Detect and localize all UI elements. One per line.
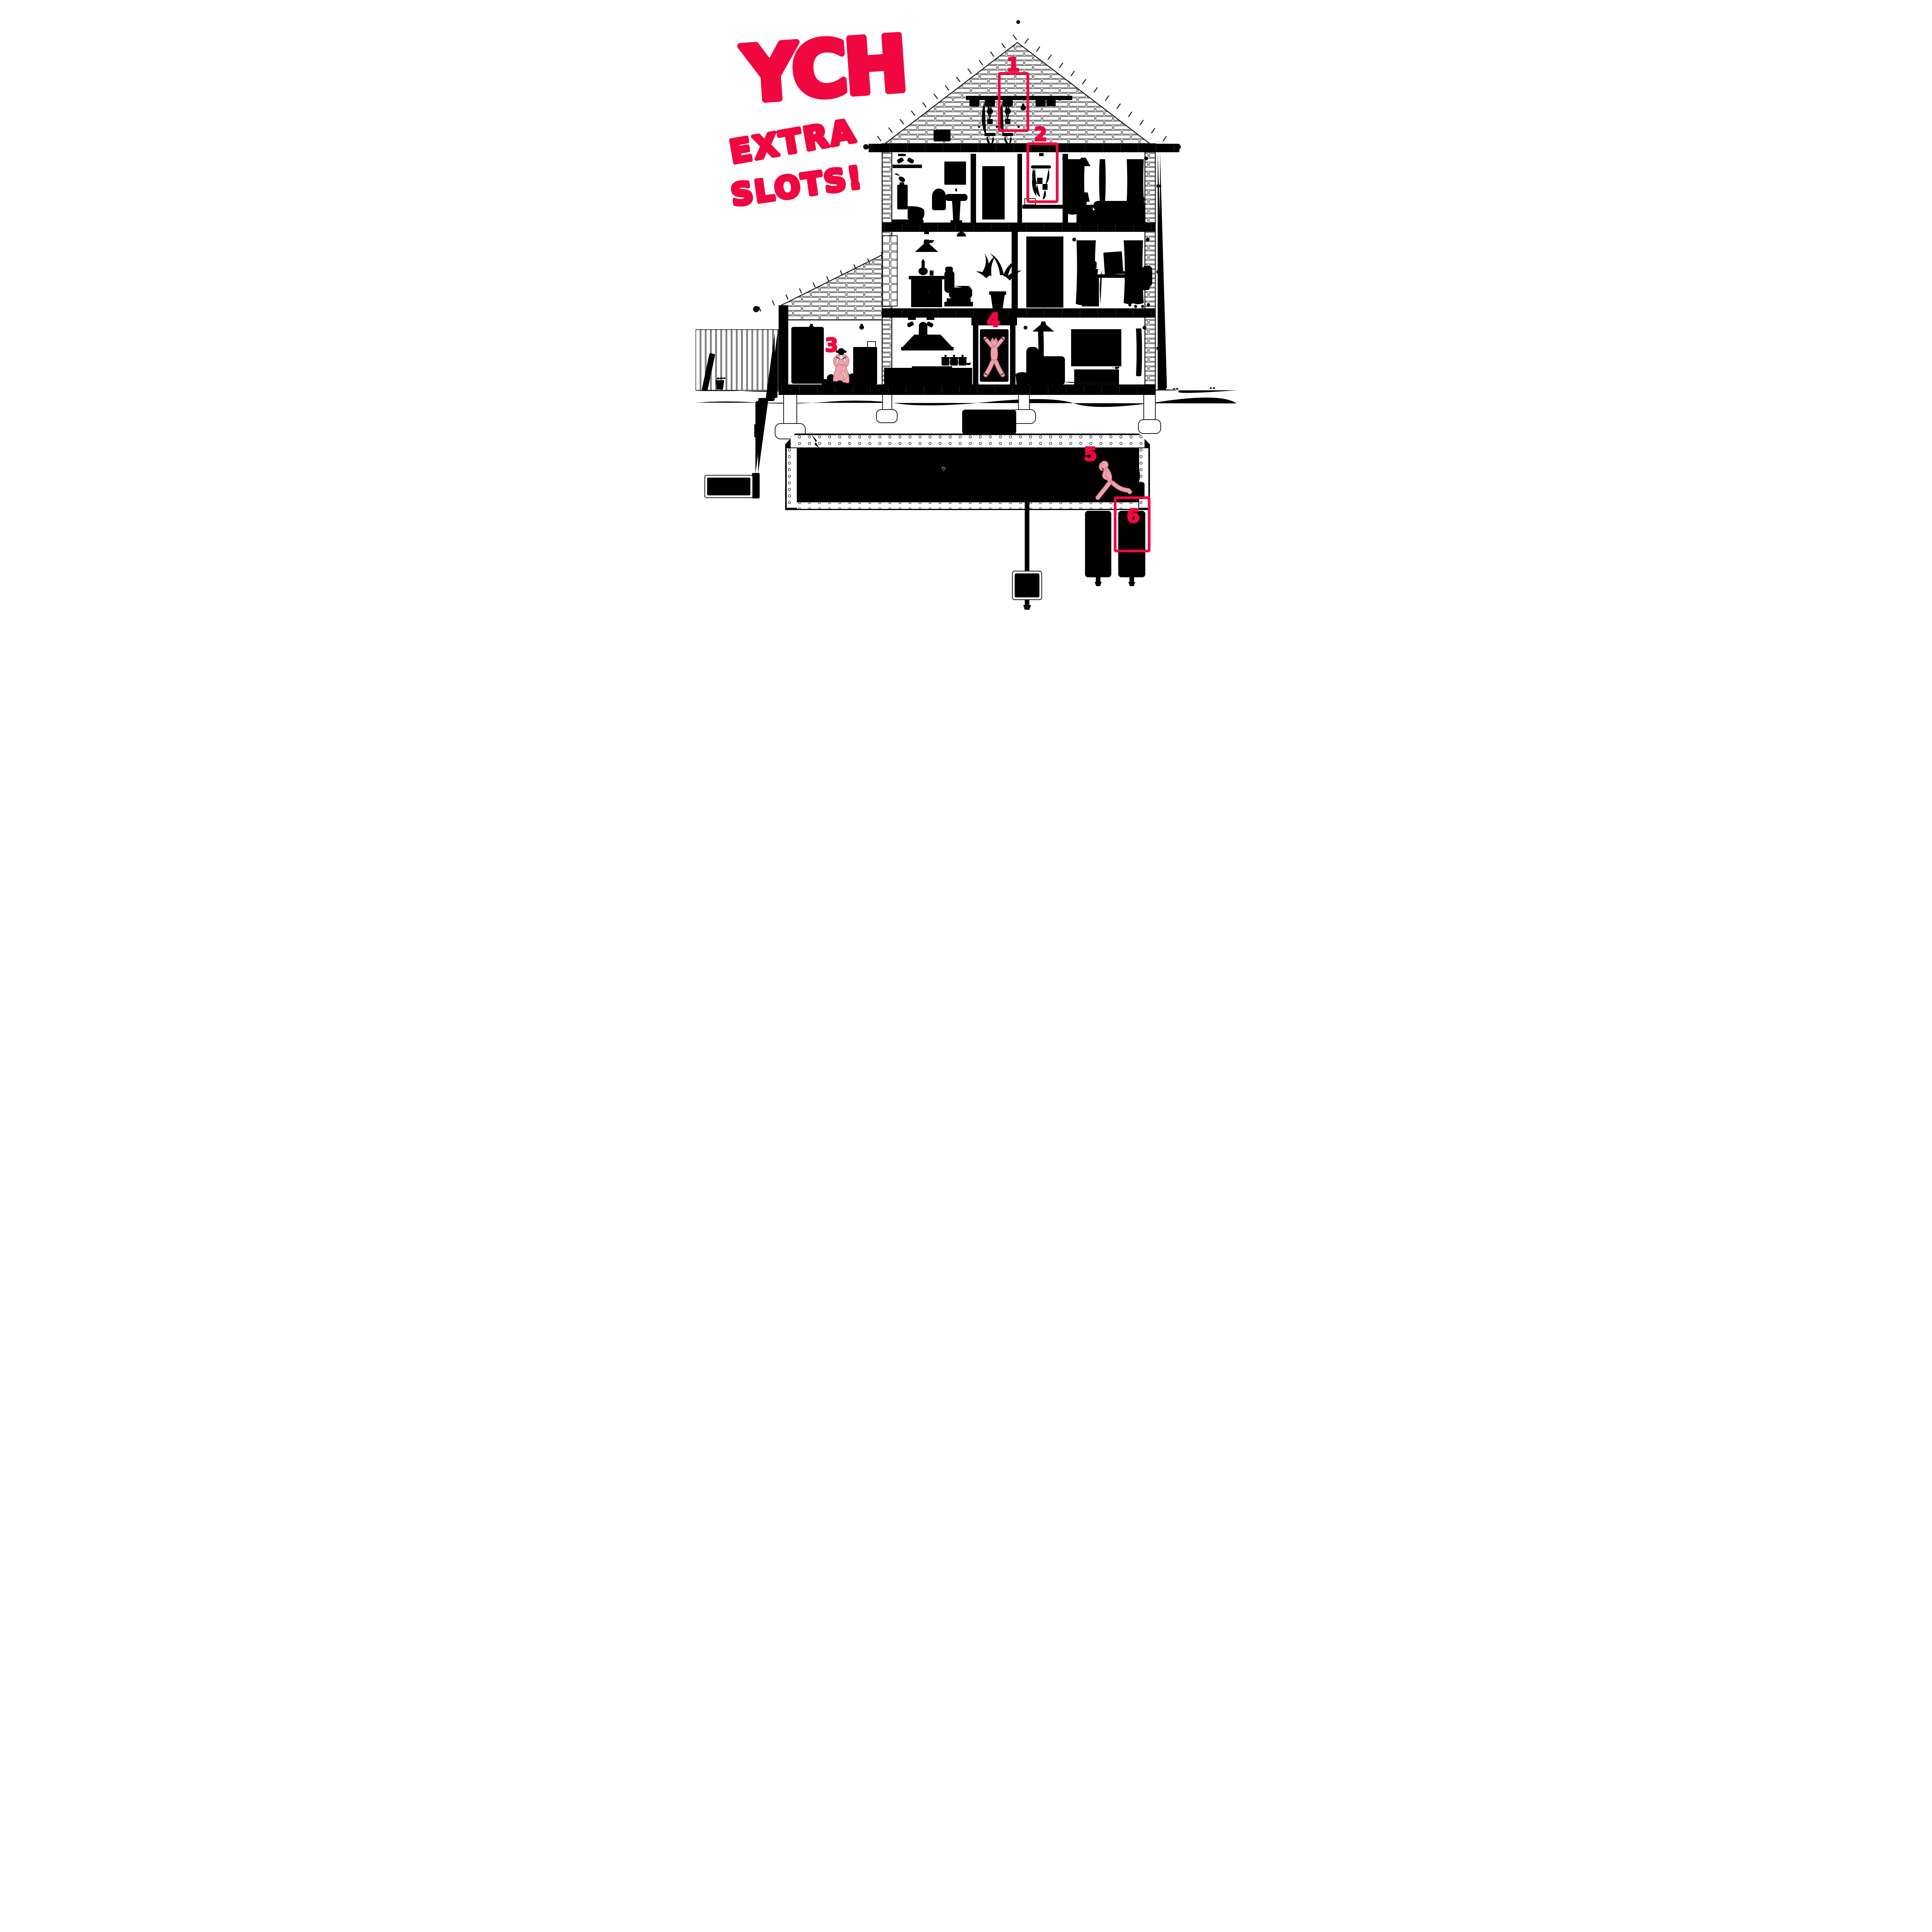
hanging-bag [932, 188, 946, 210]
glass-block-window [883, 236, 897, 306]
decanter [918, 259, 934, 276]
bedroom [1062, 152, 1148, 223]
exterior-downpipe [1156, 151, 1167, 390]
slot-6-number[interactable]: 6 [1127, 505, 1139, 527]
headline-title: YCH [739, 20, 908, 119]
chandelier [915, 232, 938, 252]
shower-head [898, 175, 906, 183]
kitchen [883, 318, 972, 386]
waste-pipe-and-box [1012, 501, 1042, 610]
slot-1-number[interactable]: 1 [1007, 54, 1019, 76]
bookshelf [1026, 236, 1063, 308]
slot-2-box[interactable] [1028, 144, 1057, 202]
slot-2-number[interactable]: 2 [1034, 124, 1047, 145]
ceiling-spotlights [896, 154, 915, 164]
dome-lamp [957, 232, 966, 236]
bathroom [892, 154, 968, 223]
middle-floor [882, 308, 1155, 318]
annex-door [791, 327, 824, 384]
storage-tank-left [1085, 511, 1111, 586]
attic-floor [869, 144, 1179, 152]
slot-4-number[interactable]: 4 [987, 310, 1000, 331]
second-floor-middle-room [982, 153, 1063, 223]
pillow [1131, 196, 1145, 203]
pedestal-sink [945, 189, 968, 223]
fence [696, 330, 778, 391]
recliner-chair [944, 267, 973, 306]
house-cross-section: YCH EXTRA SLOTS! [696, 0, 1236, 611]
study-room [883, 232, 1022, 308]
stove [912, 366, 952, 386]
storage-cabinet [913, 464, 951, 500]
curtain-center [1099, 159, 1106, 202]
toilet [897, 182, 924, 223]
second-floor [882, 223, 1155, 232]
tv-and-console [1071, 329, 1121, 386]
curtain-strand-right [1136, 328, 1142, 376]
slot-2-harness [1031, 153, 1057, 200]
keyboard [1117, 271, 1129, 274]
ych-ad-canvas: YCH EXTRA SLOTS! [696, 0, 1236, 611]
mouse [1112, 366, 1119, 369]
gutter-end [753, 306, 759, 312]
bunker-door [802, 453, 835, 501]
roof-finial [1016, 20, 1020, 32]
jars [941, 355, 967, 366]
slot-5-number[interactable]: 5 [1084, 444, 1097, 465]
living-room [1015, 318, 1146, 386]
slot-3-number[interactable]: 3 [825, 335, 838, 356]
drinks-cabinet [909, 259, 944, 307]
headline-subtitle-1: EXTRA [727, 112, 860, 171]
bucket [1037, 487, 1047, 501]
headline: YCH EXTRA SLOTS! [727, 20, 908, 213]
